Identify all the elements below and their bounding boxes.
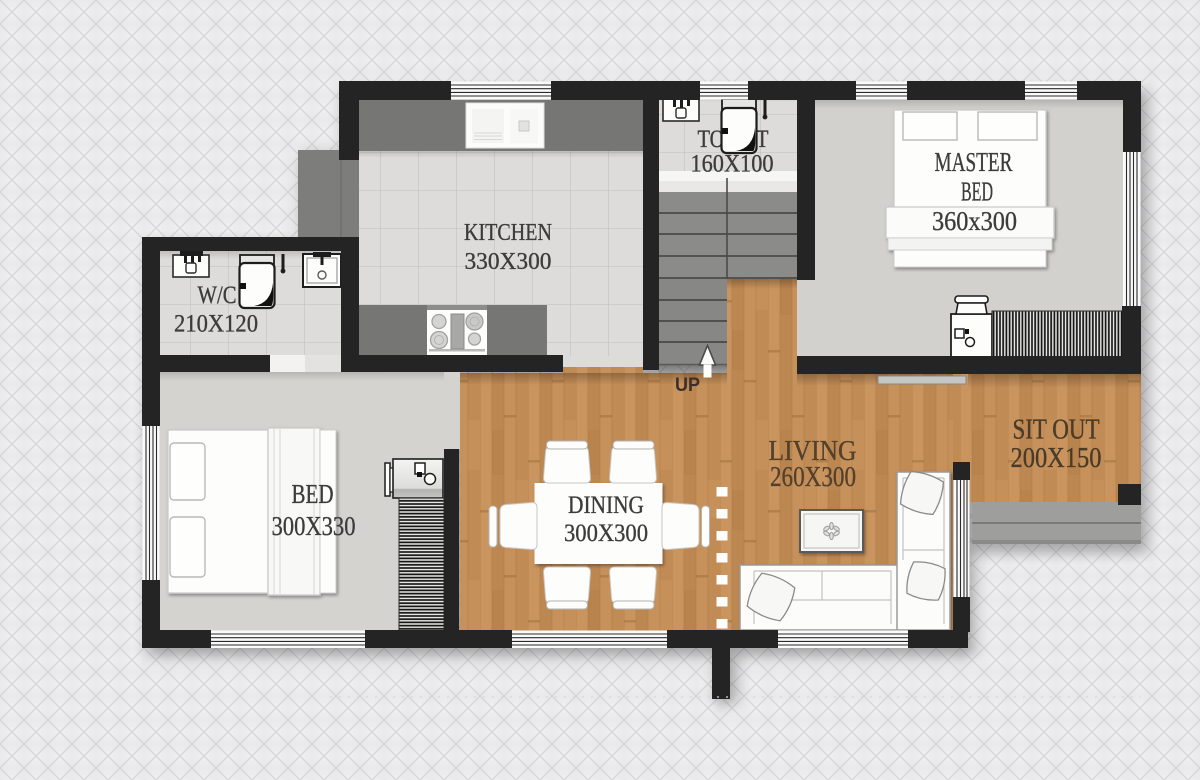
svg-text:360x300: 360x300 (932, 206, 1017, 236)
svg-text:MASTER: MASTER (935, 147, 1013, 177)
svg-text:DINING: DINING (568, 492, 644, 519)
svg-text:BED: BED (292, 479, 334, 509)
svg-text:200X150: 200X150 (1011, 443, 1102, 474)
svg-text:260X300: 260X300 (770, 462, 856, 493)
svg-text:KITCHEN: KITCHEN (464, 220, 552, 246)
svg-text:210X120: 210X120 (174, 311, 258, 338)
svg-text:300X330: 300X330 (272, 511, 356, 541)
svg-text:SIT OUT: SIT OUT (1013, 415, 1100, 446)
svg-text:300X300: 300X300 (564, 520, 648, 547)
svg-text:UP: UP (675, 375, 700, 396)
svg-text:160X100: 160X100 (691, 151, 774, 178)
svg-text:330X300: 330X300 (465, 249, 552, 275)
svg-text:BED: BED (961, 177, 993, 207)
svg-text:W/C: W/C (198, 282, 237, 309)
